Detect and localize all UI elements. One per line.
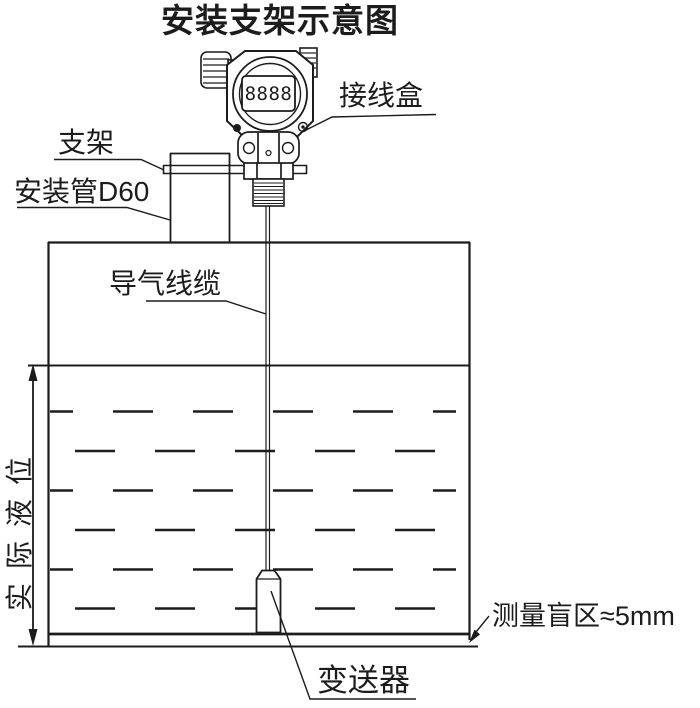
mounting-pipe-leader bbox=[17, 208, 170, 221]
tank-drawing bbox=[18, 242, 478, 647]
bracket-label: 支架 bbox=[58, 128, 114, 159]
lcd-display: 8888 bbox=[242, 76, 295, 111]
hex-nut-drawing bbox=[244, 163, 293, 179]
transmitter-label: 变送器 bbox=[317, 664, 410, 698]
yoke-drawing bbox=[238, 132, 299, 164]
air-cable-label: 导气线缆 bbox=[109, 269, 221, 300]
bolt-left-icon bbox=[233, 124, 241, 132]
diagram-title: 安装支架示意图 bbox=[150, 3, 410, 39]
installation-diagram: 8888 bbox=[0, 0, 700, 708]
transmitter-head-drawing: 8888 bbox=[201, 48, 317, 206]
blind-zone-arrowhead bbox=[469, 630, 480, 644]
mounting-pipe-drawing bbox=[170, 153, 230, 242]
air-cable-drawing bbox=[266, 206, 270, 571]
actual-level-label: 实际液位 bbox=[5, 427, 35, 627]
blind-zone-label: 测量盲区≈5mm bbox=[492, 602, 675, 632]
junction-box-label: 接线盒 bbox=[339, 81, 423, 112]
air-cable-leader bbox=[146, 301, 266, 314]
threaded-stem-drawing bbox=[253, 179, 284, 206]
blind-zone-leader bbox=[476, 616, 489, 632]
mounting-pipe-label: 安装管D60 bbox=[14, 177, 149, 208]
probe-drawing bbox=[257, 571, 281, 633]
bracket-leader bbox=[54, 160, 164, 171]
display-value: 8888 bbox=[245, 83, 293, 105]
junction-box-leader bbox=[304, 115, 436, 132]
liquid-dashes bbox=[50, 412, 456, 609]
